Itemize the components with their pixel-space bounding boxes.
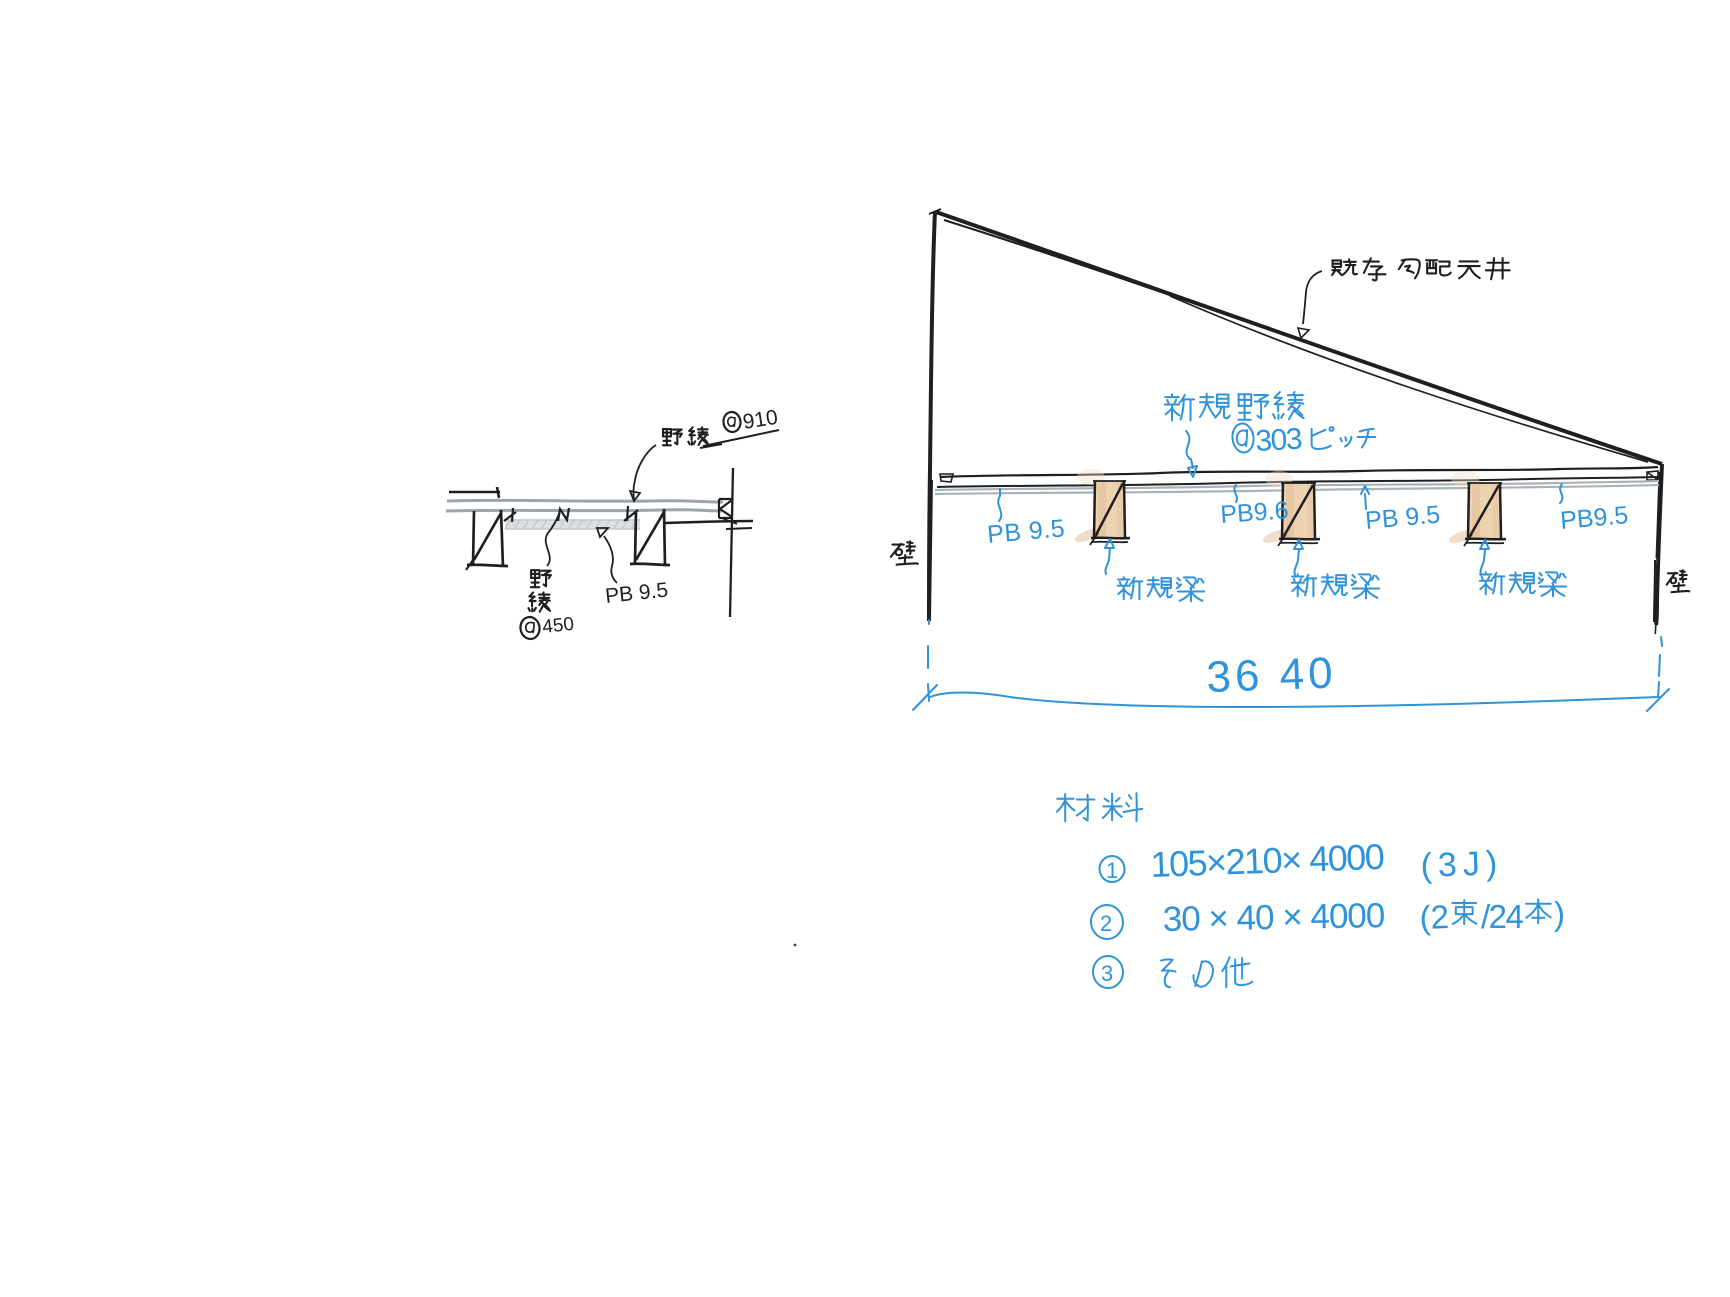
svg-text:(3J): (3J) <box>1420 844 1504 885</box>
svg-text:105×210× 4000: 105×210× 4000 <box>1150 836 1385 885</box>
svg-text:36 40: 36 40 <box>1206 648 1338 702</box>
svg-text:(2: (2 <box>1419 898 1450 936</box>
svg-text:): ) <box>1554 895 1565 932</box>
svg-text:3: 3 <box>1101 961 1113 986</box>
svg-text:2: 2 <box>1100 911 1112 936</box>
svg-text:30 × 40 × 4000: 30 × 40 × 4000 <box>1162 896 1385 939</box>
svg-text:303: 303 <box>1255 423 1303 458</box>
svg-text:PB9.6: PB9.6 <box>1219 496 1289 529</box>
svg-text:450: 450 <box>541 614 575 638</box>
svg-text:PB9.5: PB9.5 <box>1559 501 1629 535</box>
svg-text:/24: /24 <box>1481 898 1524 935</box>
svg-text:1: 1 <box>1106 858 1118 883</box>
